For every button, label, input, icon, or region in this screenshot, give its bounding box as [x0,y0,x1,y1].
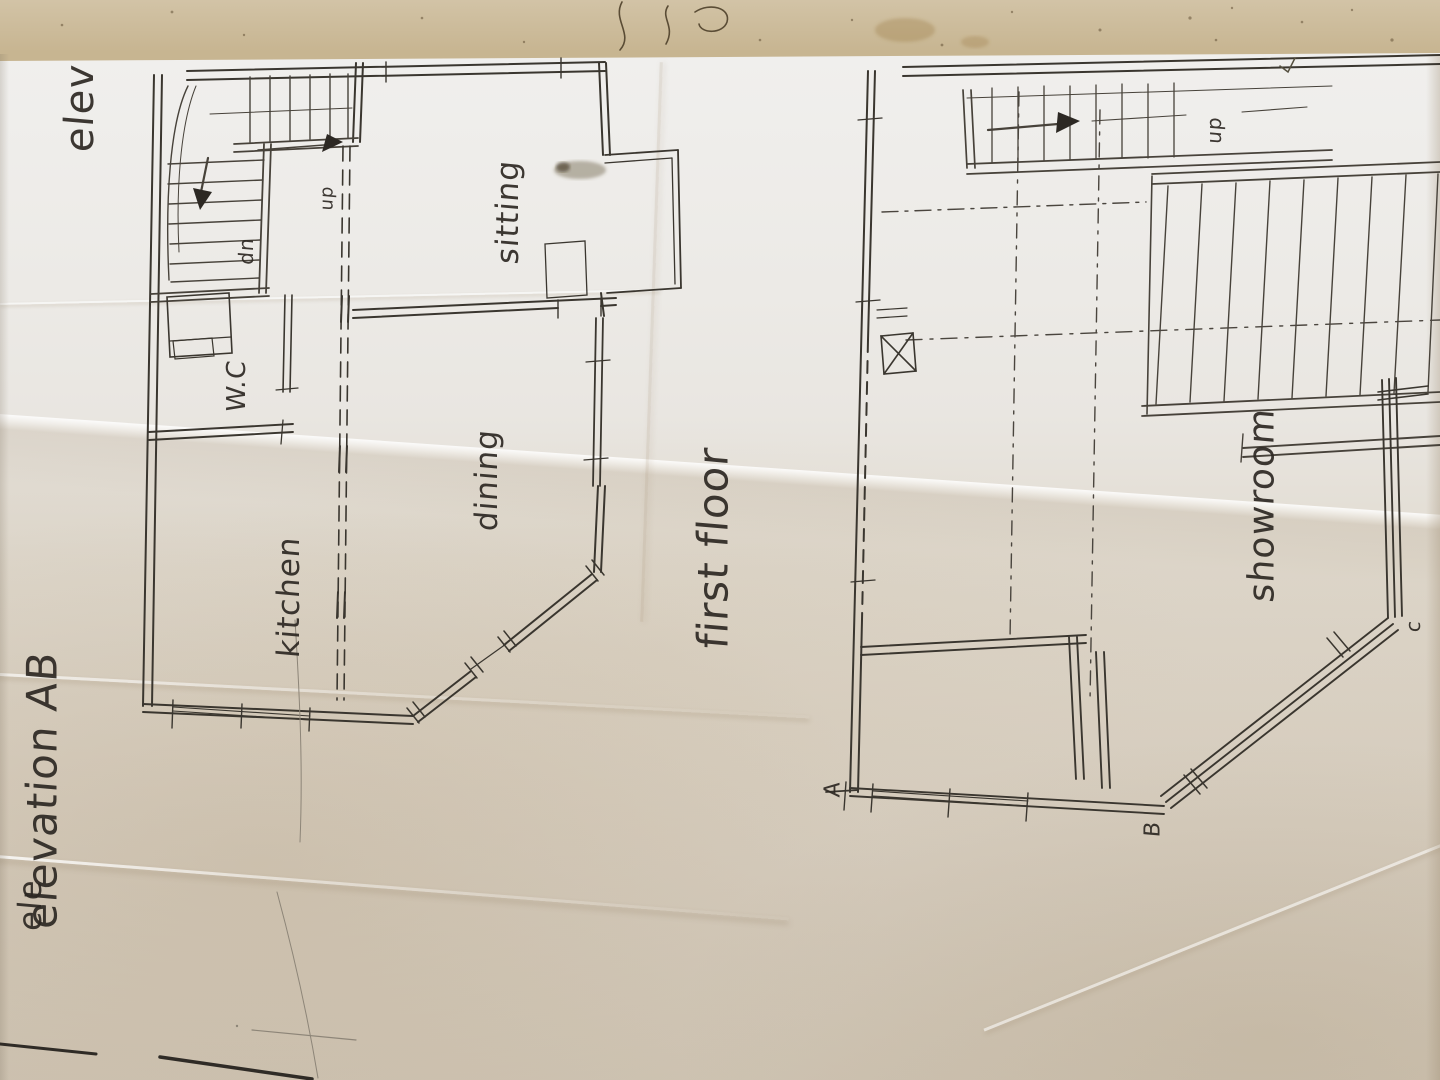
pencil-crease-marks [236,620,356,1078]
label-marker-a: A [821,780,846,798]
label-marker-c: c [1401,619,1425,633]
band-scribble [619,2,727,50]
stair-up-arrow [1056,112,1080,133]
label-elevation-partial-top: elev [57,62,103,154]
plan1-right-annex [386,58,681,298]
kitchen-window-wall [143,700,413,731]
label-first-floor-title: first floor [689,445,738,651]
plan1-bay-window [407,486,605,723]
plan2-bay-window [1161,378,1428,808]
column-marker-x [877,308,916,374]
label-stair-up-plan1: up [317,185,338,212]
label-kitchen: kitchen [271,535,307,659]
label-stair-up-plan2: up [1202,115,1226,144]
plan1-dining-right-wall [584,318,610,486]
floor-plan-photo: elev elevation AB ele kitchen W.C dining… [0,0,1440,1080]
plan1-walls [143,62,610,706]
plan2-stairs-right [1142,162,1440,462]
label-marker-b: B [1141,820,1166,838]
label-dining: dining [469,427,505,532]
label-sitting: sitting [490,158,526,265]
label-wc: W.C [222,359,252,414]
band-speckles [61,7,1394,47]
label-showroom: showroom [1242,406,1283,604]
label-elevation-partial-bottom: ele [11,878,49,933]
plan1-dashed-partition [337,146,350,700]
label-stair-dn: dn [234,236,258,265]
plan-ground-floor [826,55,1440,821]
plan1-room-divider [353,298,616,318]
elevation-line-fragment [0,1044,312,1079]
plan2-room [826,635,1164,821]
